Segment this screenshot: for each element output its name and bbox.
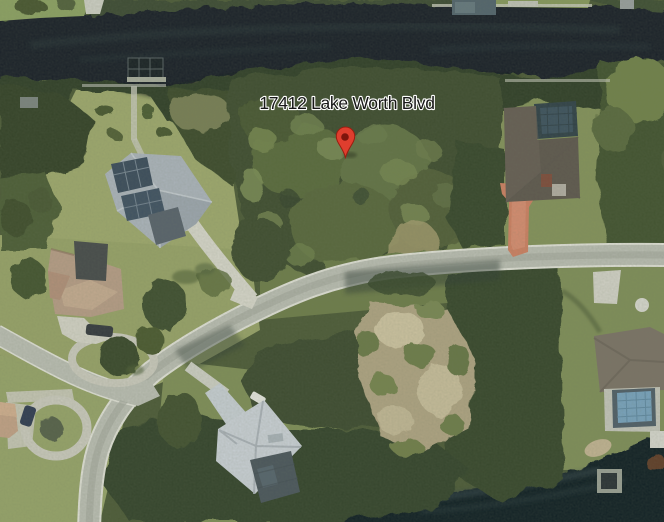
svg-text:17412 Lake Worth Blvd: 17412 Lake Worth Blvd bbox=[259, 93, 434, 113]
